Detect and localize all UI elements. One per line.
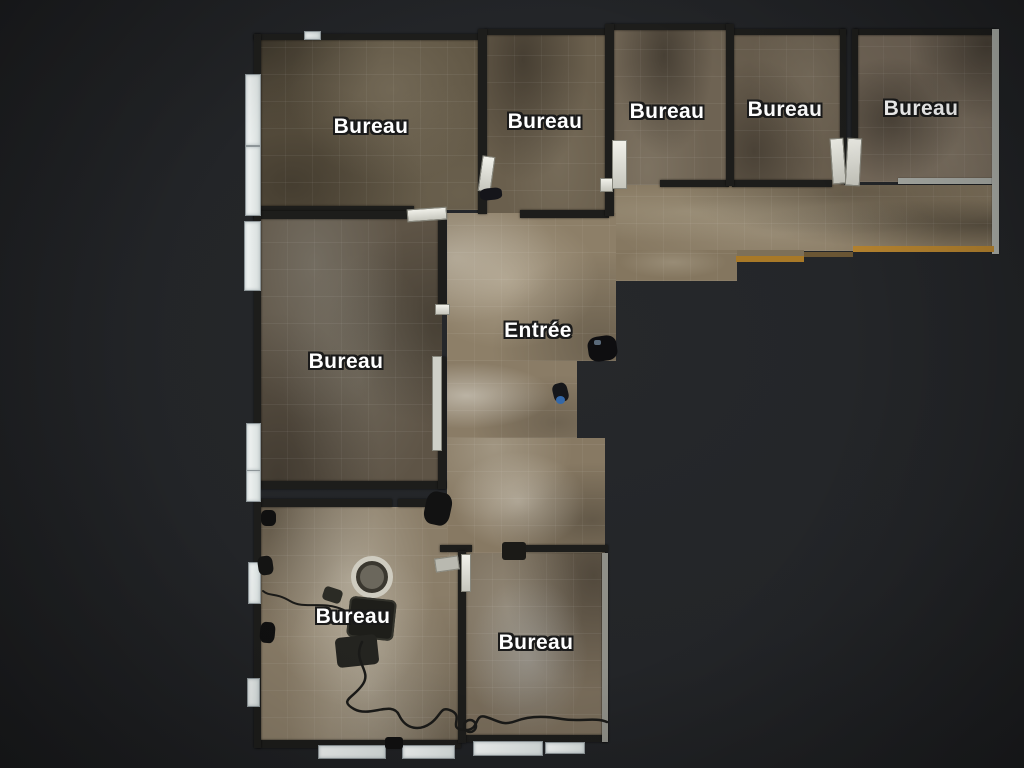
wall	[254, 499, 261, 748]
hallway-floor-south[interactable]	[447, 438, 605, 553]
furniture-object	[502, 542, 526, 560]
room-label-bureau-bottom-left: Bureau	[316, 605, 391, 629]
window-sill	[244, 221, 261, 291]
window-sill	[402, 745, 455, 759]
furniture-object	[594, 340, 601, 345]
room-label-bureau-top-1: Bureau	[334, 115, 409, 139]
corridor-edge-accent	[853, 246, 994, 252]
door-panel	[612, 140, 627, 189]
ceiling-light-fixture	[351, 556, 393, 598]
wall	[520, 210, 609, 218]
corridor-edge-accent	[736, 256, 804, 262]
wall	[898, 178, 994, 184]
window-sill	[245, 146, 261, 216]
window-sill	[545, 742, 585, 754]
door-panel	[461, 554, 471, 592]
room-label-bureau-top-5: Bureau	[884, 97, 959, 121]
wall	[660, 180, 729, 187]
wall	[602, 553, 608, 742]
room-label-bureau-top-4: Bureau	[748, 98, 823, 122]
wall	[485, 29, 609, 35]
furniture-object	[257, 555, 274, 576]
door-panel	[435, 304, 450, 315]
wall	[726, 24, 734, 186]
corridor-edge-accent	[804, 252, 853, 257]
window-sill	[318, 745, 386, 759]
room-label-bureau-mid-left: Bureau	[309, 350, 384, 374]
floorplan-canvas: Bureau Bureau Bureau Bureau Bureau Burea…	[0, 0, 1024, 768]
window-sill	[473, 741, 543, 756]
scan-equipment	[335, 634, 380, 668]
window-sill	[304, 31, 321, 40]
room-label-entree: Entrée	[504, 319, 572, 343]
corridor-floor-top-right[interactable]	[609, 185, 994, 251]
door-panel	[600, 178, 613, 192]
wall	[854, 29, 996, 35]
furniture-object	[385, 737, 403, 749]
door-panel	[407, 207, 448, 223]
door-panel	[845, 138, 862, 187]
wall	[440, 545, 472, 552]
wall	[992, 29, 999, 254]
room-label-bureau-top-2: Bureau	[508, 110, 583, 134]
wall	[438, 211, 446, 310]
wall	[256, 499, 392, 507]
furniture-object	[259, 621, 276, 643]
window-sill	[245, 74, 261, 146]
wall	[730, 29, 846, 35]
window-sill	[246, 470, 261, 502]
door-panel	[432, 356, 442, 451]
room-label-bureau-bottom-center: Bureau	[499, 631, 574, 655]
wall	[254, 481, 446, 489]
room-label-bureau-top-3: Bureau	[630, 100, 705, 124]
furniture-object	[556, 396, 565, 404]
furniture-object	[261, 510, 276, 526]
wall	[254, 34, 484, 40]
window-sill	[246, 423, 261, 471]
corridor-floor-step[interactable]	[609, 250, 737, 281]
wall	[398, 499, 428, 507]
wall	[611, 24, 729, 30]
wall	[732, 180, 832, 187]
window-sill	[247, 678, 260, 707]
